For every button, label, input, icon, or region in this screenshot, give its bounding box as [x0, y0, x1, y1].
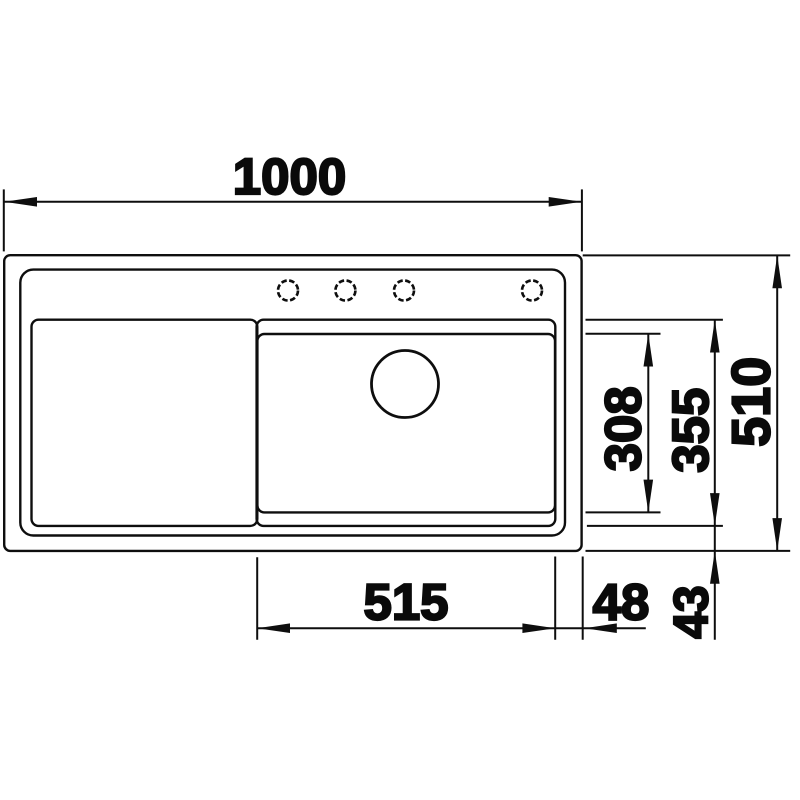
svg-text:355: 355 [662, 388, 719, 473]
svg-text:43: 43 [666, 585, 719, 638]
svg-text:515: 515 [363, 574, 448, 631]
svg-text:510: 510 [722, 357, 782, 447]
svg-text:1000: 1000 [233, 148, 346, 205]
svg-text:48: 48 [593, 574, 650, 631]
svg-text:308: 308 [595, 386, 652, 471]
